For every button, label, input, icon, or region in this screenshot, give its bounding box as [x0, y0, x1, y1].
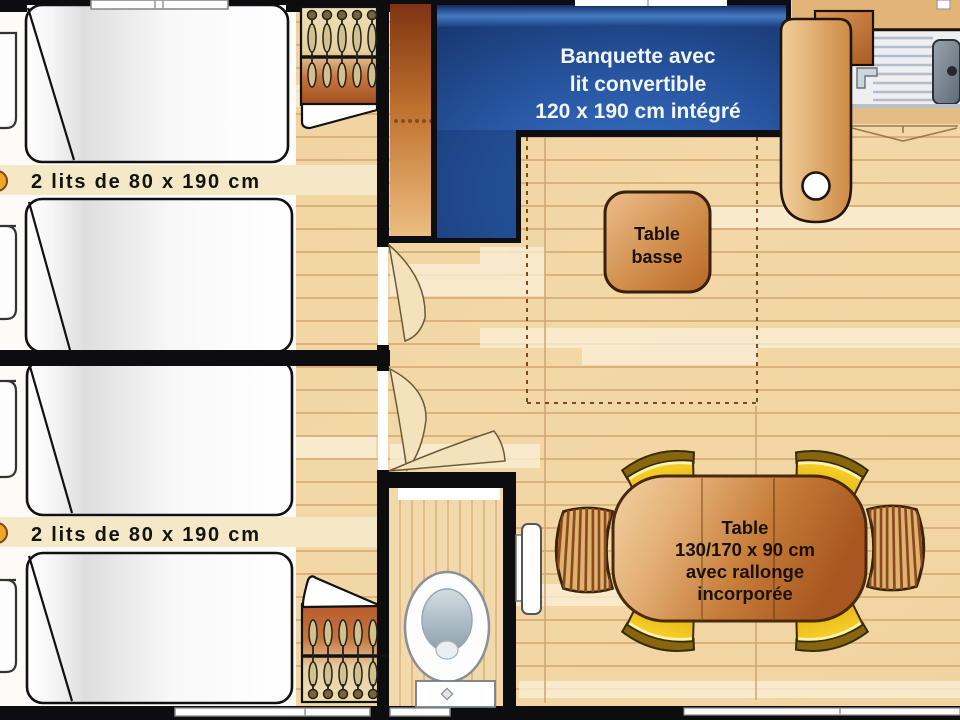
svg-text:Banquette avec: Banquette avec	[560, 45, 716, 68]
svg-text:avec rallonge: avec rallonge	[686, 561, 804, 582]
svg-text:2 lits de 80 x 190 cm: 2 lits de 80 x 190 cm	[31, 524, 259, 546]
svg-text:lit convertible: lit convertible	[570, 73, 707, 96]
svg-text:2 lits de 80 x 190 cm: 2 lits de 80 x 190 cm	[31, 171, 259, 193]
svg-text:incorporée: incorporée	[697, 583, 793, 604]
svg-text:120 x 190 cm intégré: 120 x 190 cm intégré	[535, 100, 740, 123]
svg-text:basse: basse	[631, 247, 682, 267]
svg-text:130/170 x 90 cm: 130/170 x 90 cm	[675, 539, 815, 560]
svg-text:Table: Table	[722, 517, 769, 538]
svg-text:Table: Table	[634, 224, 680, 244]
